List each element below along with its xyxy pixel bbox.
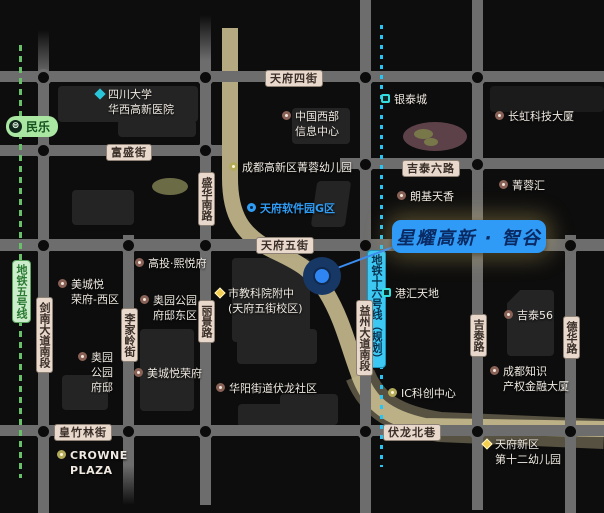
leader-line: [0, 0, 604, 513]
project-marker-dot[interactable]: [313, 267, 331, 285]
project-callout[interactable]: 星耀高新 · 智谷: [392, 220, 546, 253]
location-map: ⊜ 民乐 地铁五号线 地铁十六号线（规划） 天府四街 富盛街 吉泰六路 天府五街…: [0, 0, 604, 513]
